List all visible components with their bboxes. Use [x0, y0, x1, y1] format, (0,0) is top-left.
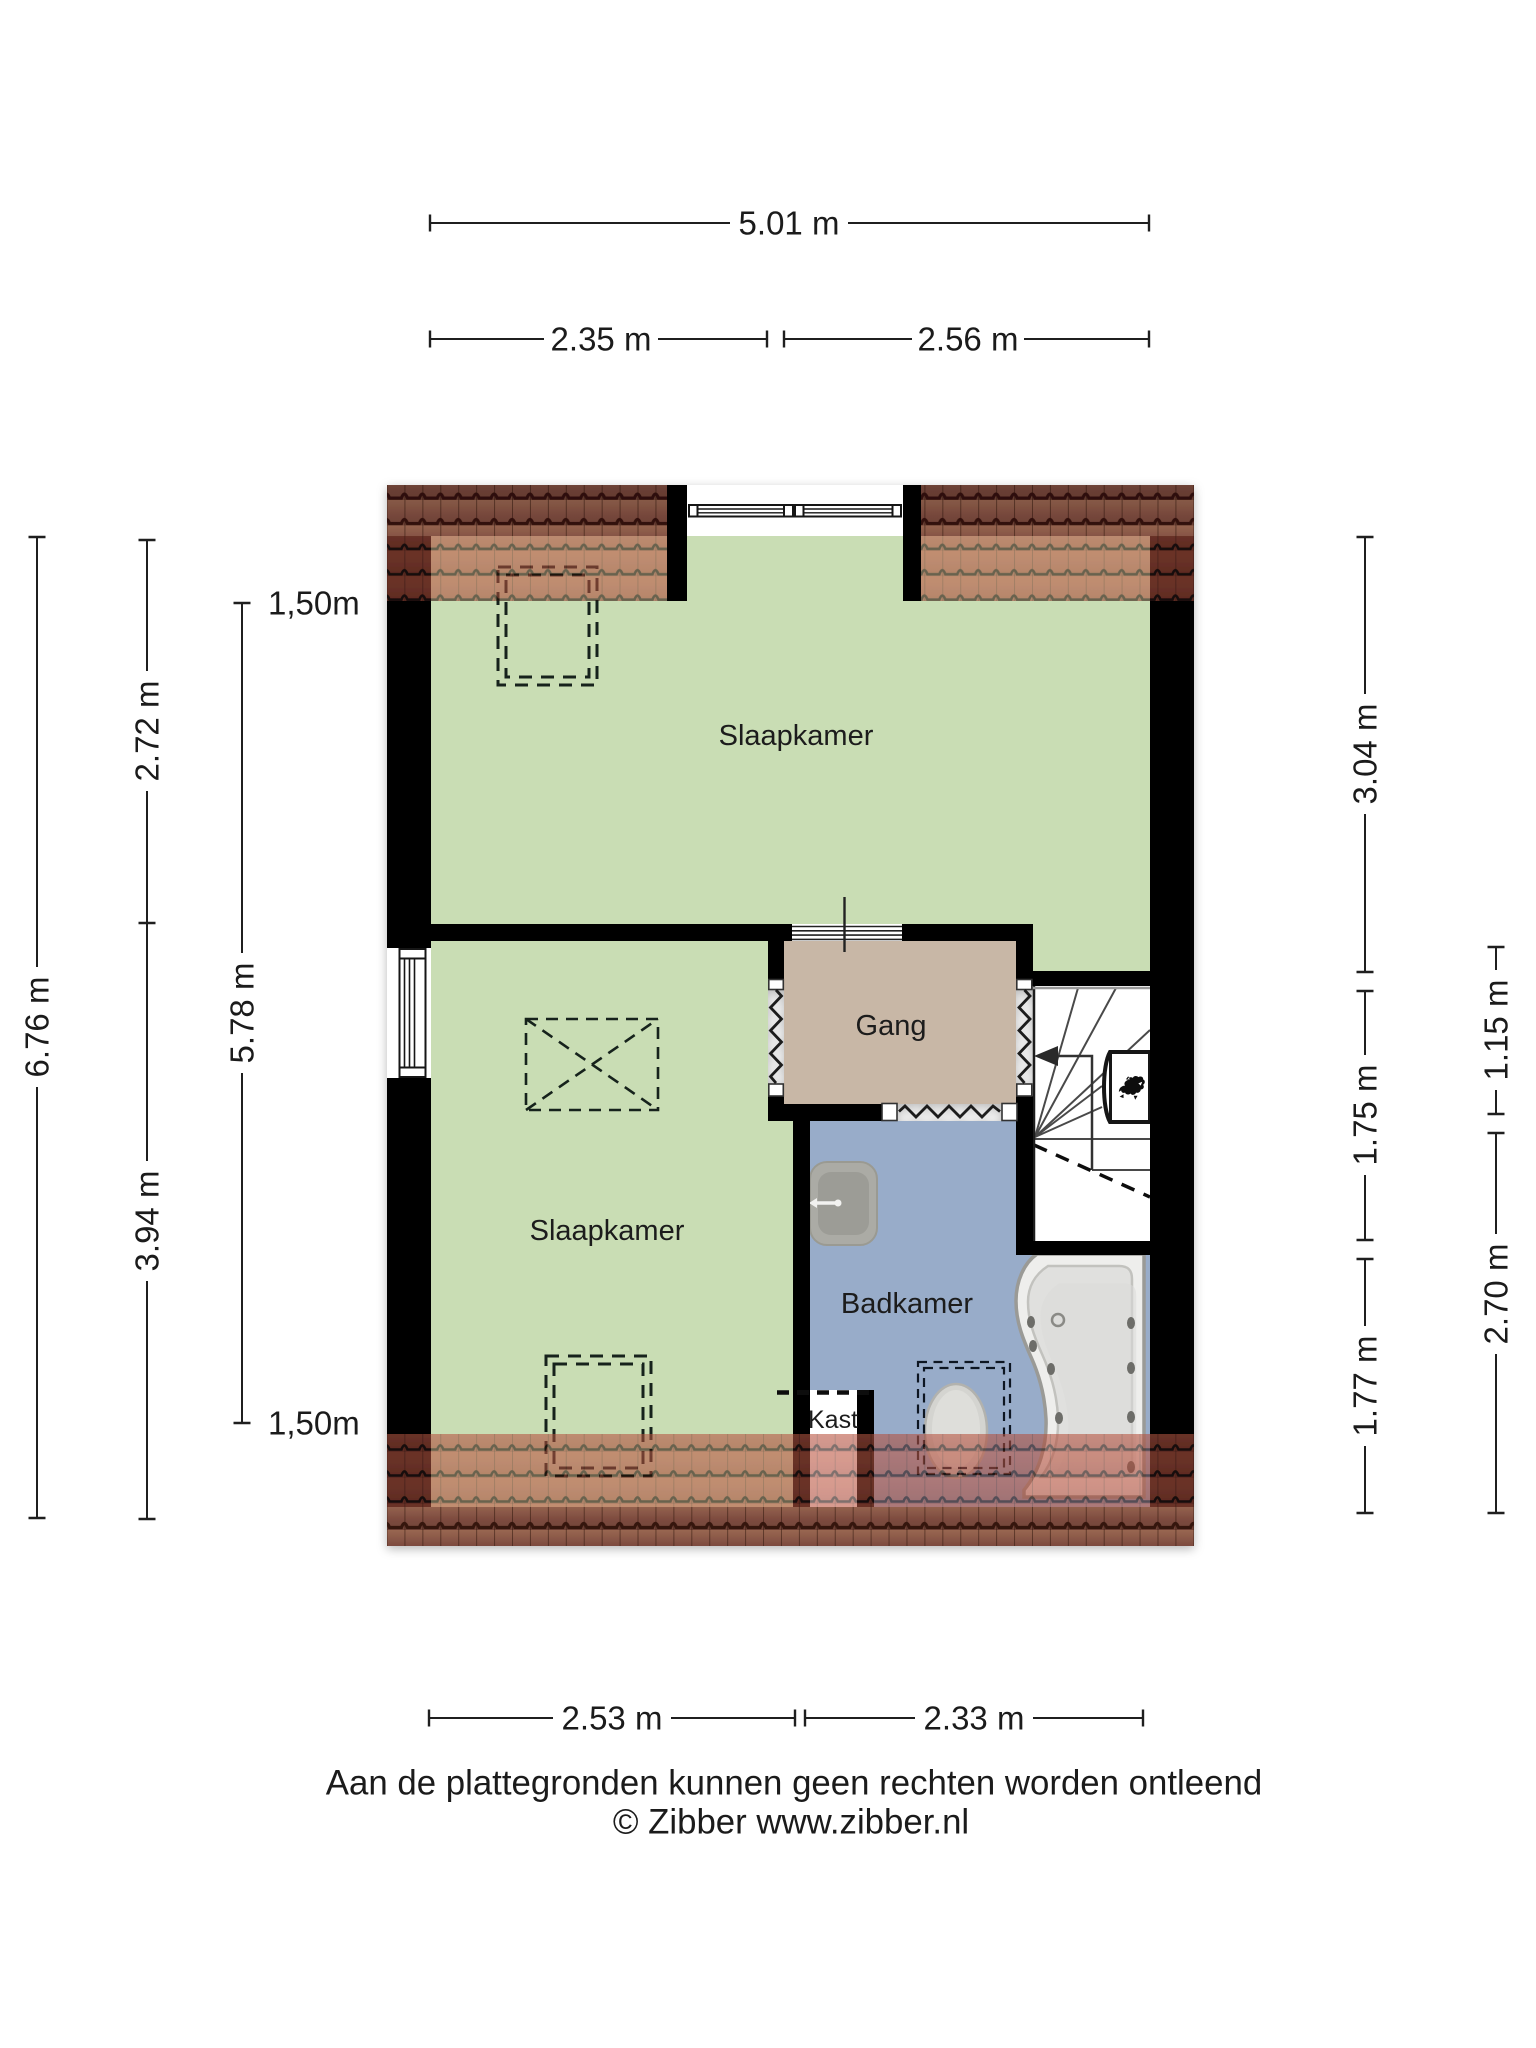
svg-text:1,50m: 1,50m [268, 1405, 360, 1442]
svg-text:Badkamer: Badkamer [841, 1288, 974, 1320]
svg-text:5.01 m: 5.01 m [739, 205, 840, 242]
svg-text:2.70 m: 2.70 m [1478, 1244, 1515, 1345]
svg-text:2.33 m: 2.33 m [924, 1700, 1025, 1737]
svg-text:5.78 m: 5.78 m [224, 963, 261, 1064]
svg-text:3.04 m: 3.04 m [1347, 704, 1384, 805]
svg-text:Slaapkamer: Slaapkamer [530, 1215, 685, 1247]
svg-text:2.56 m: 2.56 m [918, 321, 1019, 358]
svg-text:1.77 m: 1.77 m [1347, 1336, 1384, 1437]
svg-text:2.53 m: 2.53 m [562, 1700, 663, 1737]
svg-text:3.94 m: 3.94 m [129, 1171, 166, 1272]
svg-text:Aan de plattegronden kunnen ge: Aan de plattegronden kunnen geen rechten… [326, 1764, 1262, 1803]
svg-text:6.76 m: 6.76 m [19, 977, 56, 1078]
svg-text:Gang: Gang [856, 1010, 927, 1042]
svg-text:Kast: Kast [808, 1406, 858, 1434]
svg-text:2.35 m: 2.35 m [551, 321, 652, 358]
svg-text:1.75 m: 1.75 m [1347, 1065, 1384, 1166]
svg-text:1.15 m: 1.15 m [1478, 980, 1515, 1081]
svg-text:2.72 m: 2.72 m [129, 681, 166, 782]
svg-text:© Zibber www.zibber.nl: © Zibber www.zibber.nl [613, 1803, 969, 1842]
svg-text:1,50m: 1,50m [268, 585, 360, 622]
svg-text:Slaapkamer: Slaapkamer [719, 720, 874, 752]
